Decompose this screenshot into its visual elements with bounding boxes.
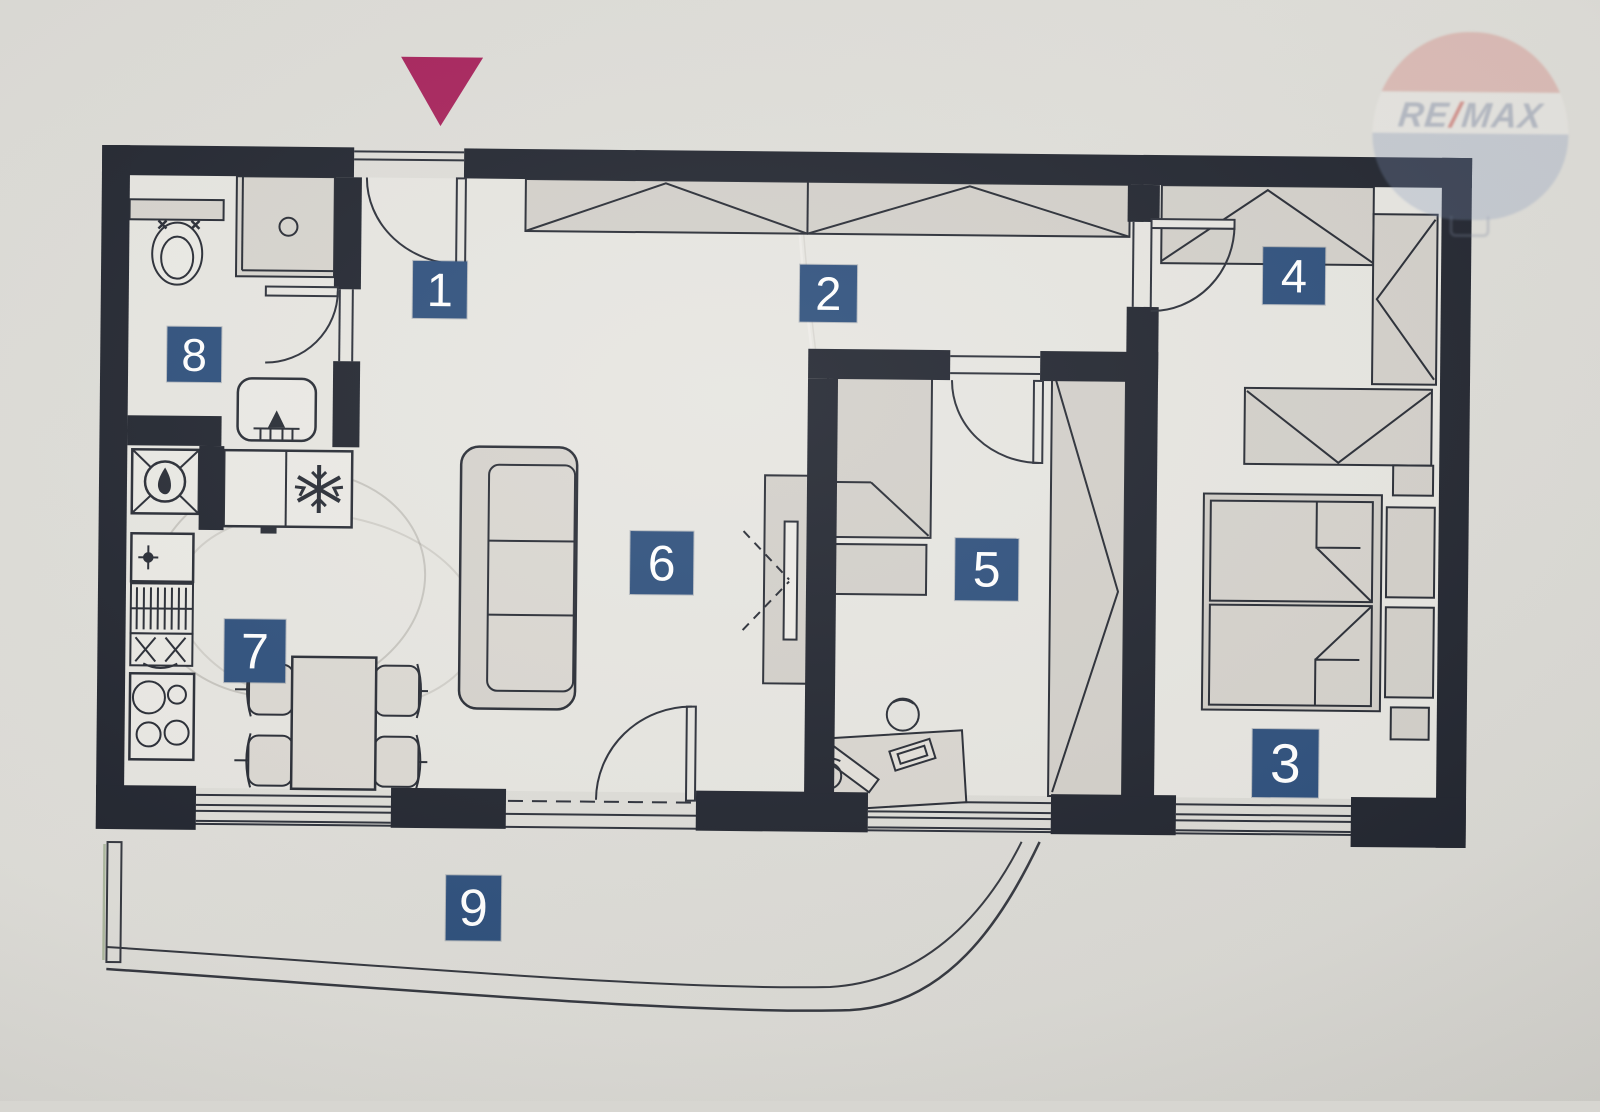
room-badge-7: 7 xyxy=(224,619,286,683)
washing-machine-icon xyxy=(132,449,200,514)
room-number: 7 xyxy=(241,622,269,680)
window-room3 xyxy=(1176,804,1351,832)
entrance-door-frame xyxy=(354,151,464,160)
tv-icon xyxy=(784,522,798,640)
room-number: 5 xyxy=(973,540,1001,598)
room-badge-2: 2 xyxy=(800,265,858,323)
balcony-edge-inner xyxy=(106,833,1021,989)
nightstand xyxy=(1386,507,1435,597)
shelf xyxy=(1393,465,1433,495)
room5-wall xyxy=(808,349,950,380)
room-number: 3 xyxy=(1270,731,1301,795)
balcony-sliding-door xyxy=(508,801,691,803)
room-badge-4: 4 xyxy=(1263,247,1326,305)
nightstand xyxy=(828,544,926,595)
chair xyxy=(246,733,293,787)
balcony-edge-outer xyxy=(106,833,1040,1013)
room5-wardrobe xyxy=(1048,374,1126,797)
shelf xyxy=(1391,707,1429,739)
shower-icon xyxy=(236,176,335,277)
bathroom-wall xyxy=(334,177,362,289)
room-number: 6 xyxy=(648,534,676,592)
room-number: 1 xyxy=(427,262,454,317)
single-bed xyxy=(827,374,933,538)
entrance-marker-icon xyxy=(400,57,483,127)
dish-rack-icon xyxy=(131,583,193,634)
room-number: 2 xyxy=(815,266,842,321)
chair xyxy=(374,735,421,789)
dining-table xyxy=(291,657,376,790)
corridor-wardrobe xyxy=(525,179,1129,237)
room4-right-wardrobe xyxy=(1372,214,1438,385)
room-number: 9 xyxy=(459,878,488,938)
floor-plan-photo: RE/MAX 1 2 3 4 5 6 7 8 9 xyxy=(0,0,1600,1101)
room-number: 4 xyxy=(1281,248,1308,303)
nightstand xyxy=(1385,607,1434,697)
room-badge-9: 9 xyxy=(446,875,502,941)
window-kitchen xyxy=(196,795,391,823)
room-badge-6: 6 xyxy=(630,531,694,595)
hob-icon xyxy=(129,673,194,760)
balcony xyxy=(103,833,1040,1013)
plant-line xyxy=(103,844,104,960)
room4-low-wardrobe xyxy=(1244,388,1432,466)
double-bed xyxy=(1202,494,1382,712)
kitchen-sink-icon xyxy=(131,533,193,582)
floor-plan: RE/MAX 1 2 3 4 5 6 7 8 9 xyxy=(0,0,1600,1112)
balcony-railing xyxy=(106,842,121,962)
fridge-icon xyxy=(224,450,353,534)
floor-plan-drawing xyxy=(0,0,1600,1112)
room-badge-1: 1 xyxy=(413,261,468,319)
room-badge-3: 3 xyxy=(1252,729,1319,798)
chair xyxy=(375,664,422,718)
washbasin-icon xyxy=(237,378,316,441)
counter-unit xyxy=(130,633,192,668)
sofa xyxy=(459,446,578,709)
room-number: 8 xyxy=(181,327,207,381)
room-badge-8: 8 xyxy=(167,327,222,383)
room-badge-5: 5 xyxy=(955,538,1019,601)
